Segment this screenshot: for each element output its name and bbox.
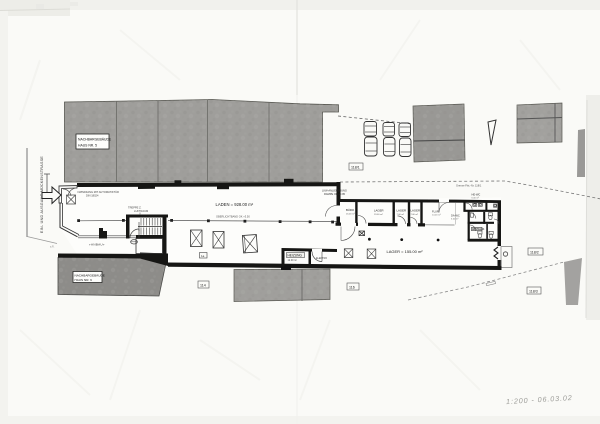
svg-text:LAGER: LAGER <box>411 209 420 213</box>
svg-text:LAGER: LAGER <box>374 209 383 213</box>
svg-text:a.R.: a.R. <box>50 246 55 249</box>
svg-text:HAUS NR. 5: HAUS NR. 5 <box>78 144 97 148</box>
svg-text:12.00 m²: 12.00 m² <box>288 259 298 262</box>
svg-text:OBERLICHTBAND OK +3.50: OBERLICHTBAND OK +3.50 <box>216 214 250 218</box>
svg-text:HE-WC: HE-WC <box>472 193 481 197</box>
svg-text:WINDFANG MIT AUTOMATIKTÜR: WINDFANG MIT AUTOMATIKTÜR <box>79 190 119 194</box>
svg-text:DIN 18024: DIN 18024 <box>86 194 99 198</box>
svg-text:Grenze Flst.-Nr. 118/1: Grenze Flst.-Nr. 118/1 <box>456 184 482 188</box>
svg-text:ABSTELLR.: ABSTELLR. <box>472 228 485 231</box>
svg-text:16.00 m²: 16.00 m² <box>346 213 355 216</box>
svg-text:116: 116 <box>349 285 355 289</box>
svg-text:HAUS NR. 9: HAUS NR. 9 <box>75 278 93 282</box>
svg-text:TREPPE Z.: TREPPE Z. <box>128 206 142 210</box>
svg-text:BÜRO: BÜRO <box>346 208 355 212</box>
svg-text:HEIZUNG: HEIZUNG <box>288 254 303 258</box>
svg-text:114: 114 <box>200 283 206 287</box>
svg-text:LADEN = 928.00 m²: LADEN = 928.00 m² <box>216 202 254 207</box>
svg-text:14.00 m²: 14.00 m² <box>432 214 441 217</box>
svg-text:118/2: 118/2 <box>530 250 539 254</box>
svg-text:6.00 m²: 6.00 m² <box>472 197 480 200</box>
svg-text:LAGER: LAGER <box>397 209 406 213</box>
svg-text:+ANBAU+: +ANBAU+ <box>89 242 105 246</box>
svg-text:DA-WC: DA-WC <box>451 214 460 218</box>
svg-text:118/3: 118/3 <box>529 289 538 293</box>
svg-text:FLUR: FLUR <box>432 210 439 214</box>
svg-text:LAGER = 155.00 m²: LAGER = 155.00 m² <box>387 249 424 254</box>
svg-text:ELEKTRO: ELEKTRO <box>316 257 327 260</box>
svg-text:RAMPE OK +0.95: RAMPE OK +0.95 <box>324 192 346 196</box>
svg-text:7.00 m²: 7.00 m² <box>397 213 405 216</box>
svg-text:19.00 m²: 19.00 m² <box>374 213 383 216</box>
svg-text:LUFTRAUM: LUFTRAUM <box>134 209 148 213</box>
svg-text:NACHBARGEBÄUDE: NACHBARGEBÄUDE <box>78 138 112 142</box>
svg-text:NACHBARGEBÄUDE: NACHBARGEBÄUDE <box>75 273 105 277</box>
svg-text:7.00 m²: 7.00 m² <box>411 213 419 216</box>
svg-text:LKW-ANLIEFERUNG: LKW-ANLIEFERUNG <box>322 189 347 193</box>
svg-text:6.00 m²: 6.00 m² <box>451 218 459 221</box>
svg-text:118/1: 118/1 <box>351 165 360 169</box>
svg-text:1a: 1a <box>201 254 205 258</box>
